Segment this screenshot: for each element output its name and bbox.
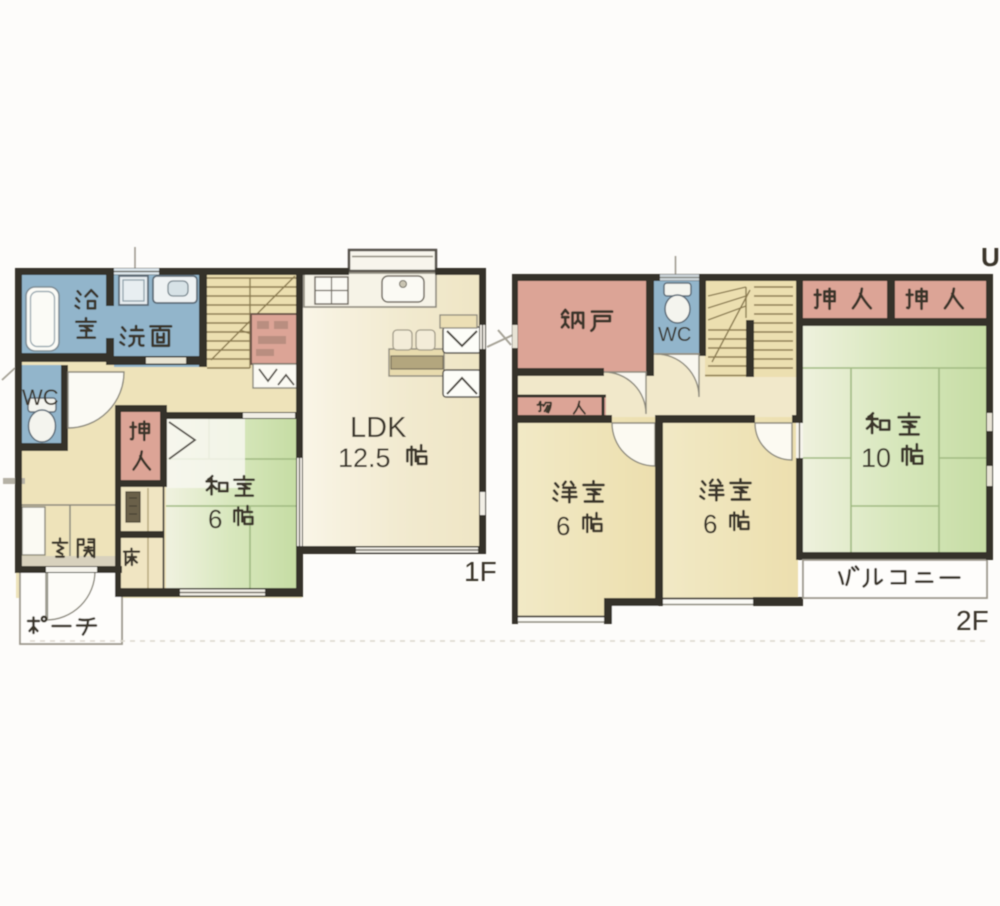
svg-text:LDK: LDK [350, 412, 407, 444]
svg-text:12.5: 12.5 [338, 443, 391, 473]
svg-text:10: 10 [861, 443, 891, 473]
svg-text:WC: WC [22, 385, 59, 410]
svg-text:U: U [981, 242, 1000, 272]
svg-text:6: 6 [556, 511, 570, 541]
svg-text:6: 6 [208, 504, 222, 534]
svg-text:WC: WC [658, 324, 691, 346]
svg-text:2F: 2F [956, 605, 989, 636]
svg-text:6: 6 [703, 509, 717, 539]
svg-text:1F: 1F [464, 556, 497, 587]
